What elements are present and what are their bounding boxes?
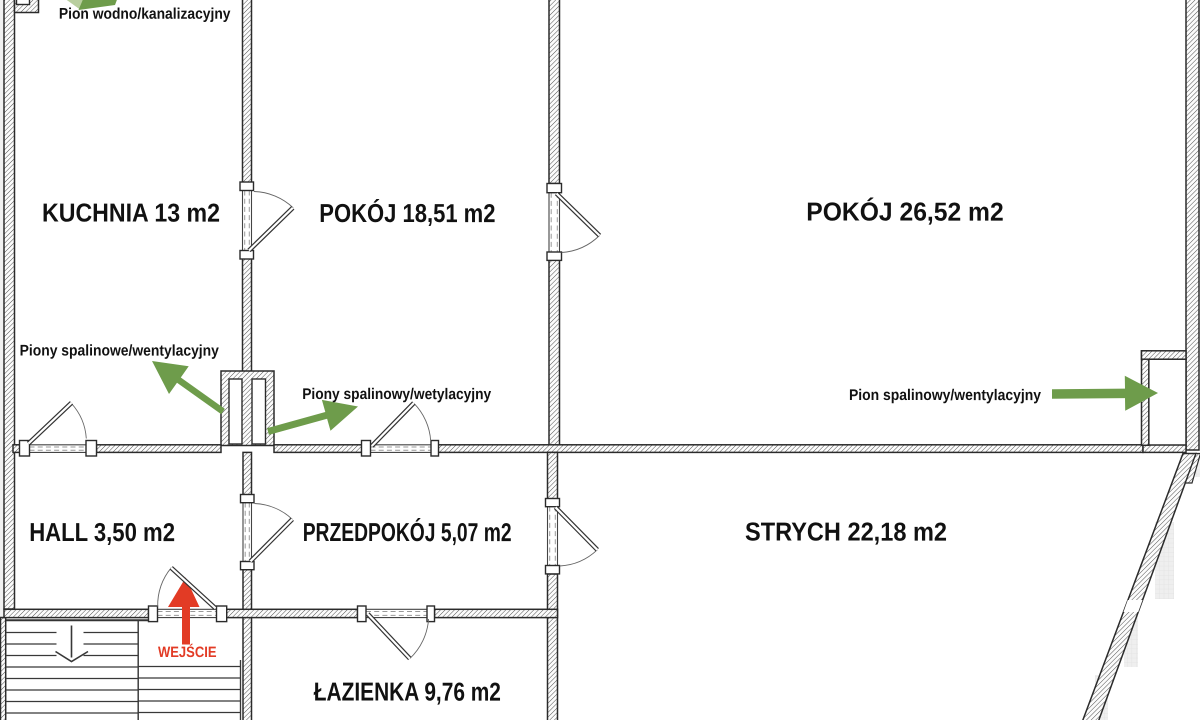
svg-text:HALL 3,50 m2: HALL 3,50 m2 xyxy=(29,517,175,547)
svg-text:PRZEDPOKÓJ 5,07 m2: PRZEDPOKÓJ 5,07 m2 xyxy=(303,517,512,547)
svg-text:Piony spalinowy/wetylacyjny: Piony spalinowy/wetylacyjny xyxy=(302,386,491,403)
svg-text:Piony spalinowe/wentylacyjny: Piony spalinowe/wentylacyjny xyxy=(20,343,220,360)
svg-text:Pion wodno/kanalizacyjny: Pion wodno/kanalizacyjny xyxy=(59,6,231,23)
svg-text:KUCHNIA 13 m2: KUCHNIA 13 m2 xyxy=(42,198,220,228)
svg-text:ŁAZIENKA 9,76 m2: ŁAZIENKA 9,76 m2 xyxy=(314,677,501,707)
svg-text:WEJŚCIE: WEJŚCIE xyxy=(158,643,217,661)
svg-text:STRYCH 22,18 m2: STRYCH 22,18 m2 xyxy=(745,517,947,547)
svg-text:POKÓJ 18,51 m2: POKÓJ 18,51 m2 xyxy=(319,198,495,228)
svg-text:Pion spalinowy/wentylacyjny: Pion spalinowy/wentylacyjny xyxy=(849,387,1041,404)
svg-text:POKÓJ 26,52 m2: POKÓJ 26,52 m2 xyxy=(806,197,1003,227)
